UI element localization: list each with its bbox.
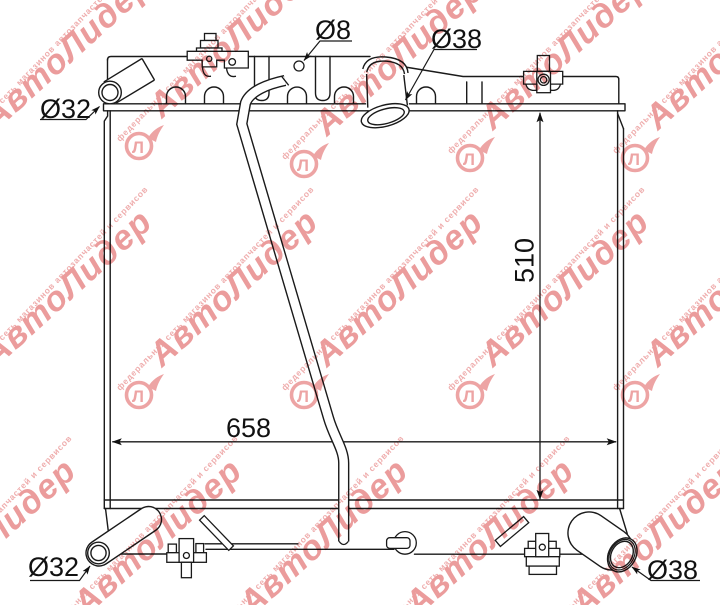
svg-text:Ø32: Ø32 (28, 552, 79, 582)
svg-text:Ø8: Ø8 (315, 15, 351, 45)
svg-text:Ø32: Ø32 (40, 94, 91, 124)
svg-text:510: 510 (510, 238, 540, 283)
